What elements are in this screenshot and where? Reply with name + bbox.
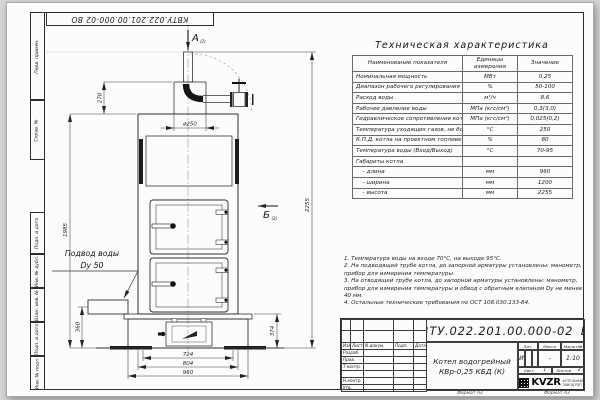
tb-hdr-izm: Изм [342, 342, 351, 349]
damper-flag [182, 331, 197, 339]
dim-1985: 1985 [63, 223, 69, 237]
tb-role-utv: Утв. [342, 384, 364, 391]
tb-role-nkontr: Н.контр. [342, 377, 364, 384]
dim-2255: 2255 [305, 198, 311, 212]
mass-value: - [538, 350, 561, 367]
chimney [174, 52, 206, 114]
tb-role-prov: Пров. [342, 356, 364, 363]
spec-row: – ширинамм1200 [353, 177, 573, 188]
tb-role-razrab: Разраб. [342, 349, 364, 356]
spec-row: Номинальная мощностьМВт0,25 [353, 72, 573, 83]
dim-724: 724 [183, 352, 194, 358]
tb-role-tkontr: Т.контр. [342, 363, 364, 370]
sheet-label: Лист [524, 368, 534, 373]
dim-360: 360 [76, 321, 82, 332]
flue-elbow [186, 84, 203, 99]
inlet-label-line2: Dу 50 [80, 261, 103, 270]
tb-hdr-data: Дата [414, 342, 427, 349]
tb-role-empty [342, 370, 364, 377]
lit-label: Лит. [518, 342, 538, 350]
format-note-right: Формат А3 [527, 391, 587, 396]
note-1: 1. Температура воды на входе 70°С, на вы… [344, 256, 586, 263]
middle-door [150, 200, 228, 254]
dim-804: 804 [183, 361, 194, 367]
tb-hdr-list: Лист [351, 342, 364, 349]
ash-door [158, 319, 212, 347]
door-handle [152, 224, 172, 228]
dim-chimney-diameter: ø250 [182, 122, 197, 128]
spec-col-name: Наименование показателя [353, 56, 463, 72]
dim-1985-group [70, 114, 96, 348]
note-2: 2. На подводящей трубе котла, до запорно… [344, 263, 586, 278]
scale-value: 1:10 [561, 350, 585, 367]
inlet-callout: Подвод воды Dу 50 [52, 249, 138, 298]
lit-cell-2 [525, 350, 532, 367]
spec-row: Температура воды (Вход/Выход)°С70-95 [353, 146, 573, 157]
title-block-left-table: Изм Лист N докум. Подп. Дата Разраб. Про… [341, 319, 427, 392]
spec-row: – высотамм2255 [353, 188, 573, 199]
view-b-label: Б [263, 210, 270, 221]
kvzr-logo-text: KVZR [531, 377, 560, 388]
dim-374-group [254, 314, 281, 348]
dim-270: 270 [98, 92, 104, 103]
door-handle [152, 282, 172, 286]
note-4: 4. Остальные технические требования по О… [344, 300, 586, 307]
spec-col-units: Единицы измерения [463, 56, 518, 72]
spec-row: Температура уходящих газов, не более°С25… [353, 124, 573, 135]
ash-door-latch [161, 332, 165, 336]
scale-label: Масштаб [561, 342, 585, 350]
lower-door [150, 258, 228, 312]
spec-table: Наименование показателя Единицы измерени… [352, 55, 573, 199]
sheets-cell: Листов 2 [552, 367, 585, 374]
spec-table-section: Техническая характеристика Наименование … [352, 40, 572, 199]
sheet-cell: Лист 1 [518, 367, 552, 374]
logo-cell: KVZR КОТЕЛЬНЫЙ ЗАВОД РЭП [518, 374, 585, 391]
spec-row: Гидравлическое сопротивление котлаМПа (к… [353, 114, 573, 125]
format-note-left: Формат А3 [440, 391, 500, 396]
sheets-value: 2 [578, 368, 581, 373]
view-b-ref: (2) [272, 216, 278, 221]
product-title-line1: Котел водогрейный [433, 357, 511, 367]
inlet-label-line1: Подвод воды [65, 249, 119, 258]
view-a-ref: (2) [200, 39, 206, 44]
dim-374: 374 [270, 325, 276, 336]
sheet-value: 1 [543, 368, 546, 373]
dim-270-group [70, 82, 172, 114]
note-3: 3. На отводящей трубе котла, до запорной… [344, 278, 586, 300]
sheets-label: Листов [556, 368, 571, 373]
tb-hdr-ndokum: N докум. [364, 342, 394, 349]
inlet-pipe [88, 300, 128, 314]
lit-value: И [518, 350, 525, 367]
flue-pipe-horizontal [203, 96, 231, 103]
spec-row: Габариты котла [353, 156, 573, 167]
spec-row: Расход водым³/ч8,6 [353, 93, 573, 104]
logo-sub-line2: ЗАВОД РЭП [563, 383, 584, 387]
flue-valve [230, 79, 254, 108]
view-a-arrow: А (2) [188, 30, 206, 50]
upper-hatch [139, 136, 239, 186]
spec-row: Диапазон рабочего регулирования%50-100 [353, 82, 573, 93]
spec-row: К.П.Д. котла на проектном топливе%80 [353, 135, 573, 146]
product-title-cell: Котел водогрейный КВр-0,25 КБД (К) [426, 342, 518, 391]
doc-number: КВТУ.022.201.00.000-02 ВО [426, 319, 585, 342]
kvzr-logo-icon [519, 378, 529, 388]
spec-row: Рабочее давление водыМПа (кгс/см²)0,3(3,… [353, 103, 573, 114]
spec-col-value: Значение [518, 56, 573, 72]
view-b-arrow: Б (2) [258, 206, 278, 221]
spec-table-title: Техническая характеристика [352, 40, 572, 51]
tb-hdr-podp: Подп. [394, 342, 414, 349]
dim-960: 960 [183, 370, 194, 376]
view-a-label: А [191, 33, 199, 44]
title-block: Изм Лист N докум. Подп. Дата Разраб. Про… [340, 318, 584, 390]
mass-label: Масса [538, 342, 561, 350]
product-title-line2: КВр-0,25 КБД (К) [439, 367, 505, 377]
technical-notes: 1. Температура воды на входе 70°С, на вы… [344, 256, 586, 308]
spec-row: – длинамм960 [353, 167, 573, 178]
